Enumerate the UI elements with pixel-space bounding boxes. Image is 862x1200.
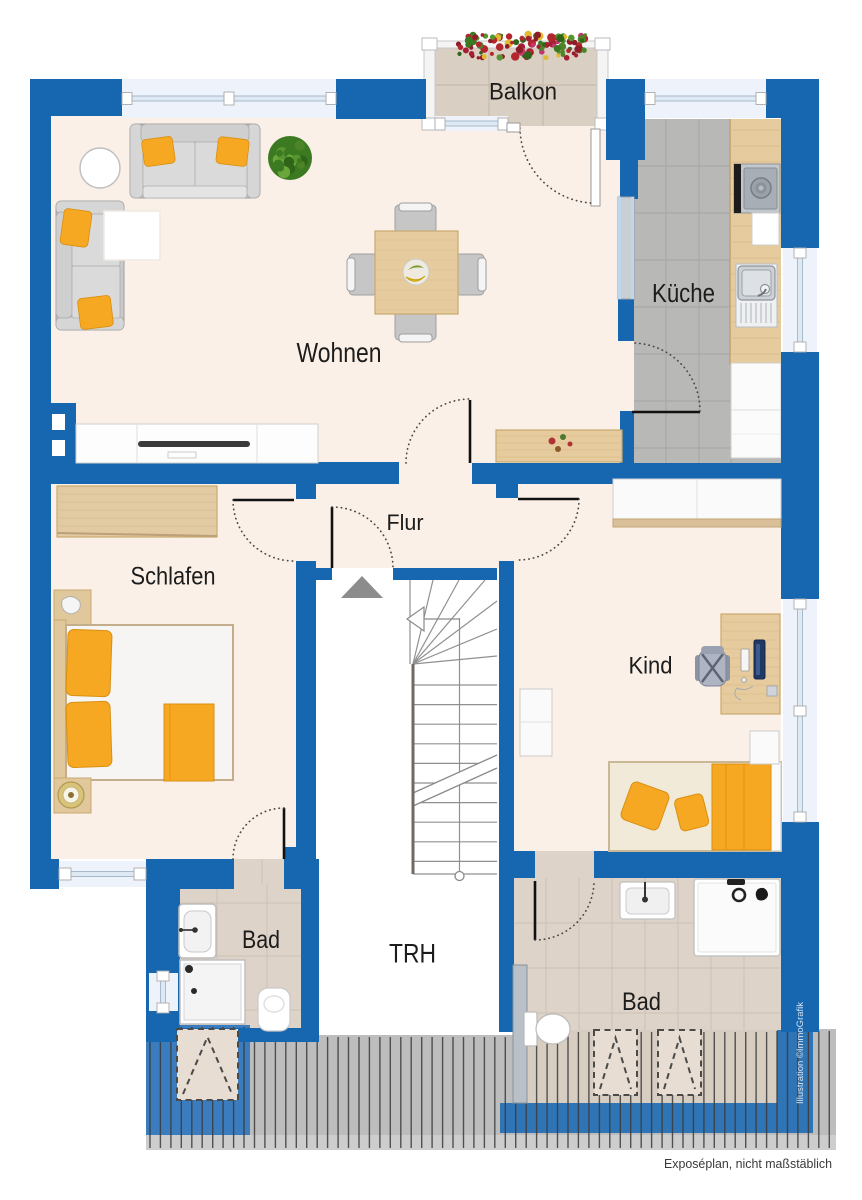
svg-text:Flur: Flur xyxy=(387,510,424,535)
svg-text:Balkon: Balkon xyxy=(489,79,557,106)
svg-text:Illustration ©ImmoGrafik: Illustration ©ImmoGrafik xyxy=(795,1002,806,1104)
svg-text:Bad: Bad xyxy=(622,988,661,1016)
svg-text:Kind: Kind xyxy=(629,653,673,680)
svg-text:Exposéplan, nicht maßstäblich: Exposéplan, nicht maßstäblich xyxy=(664,1156,832,1171)
svg-text:Küche: Küche xyxy=(652,280,715,308)
svg-text:Schlafen: Schlafen xyxy=(131,563,216,591)
svg-text:Wohnen: Wohnen xyxy=(297,337,382,368)
svg-text:Bad: Bad xyxy=(242,926,280,954)
svg-text:TRH: TRH xyxy=(389,939,436,969)
